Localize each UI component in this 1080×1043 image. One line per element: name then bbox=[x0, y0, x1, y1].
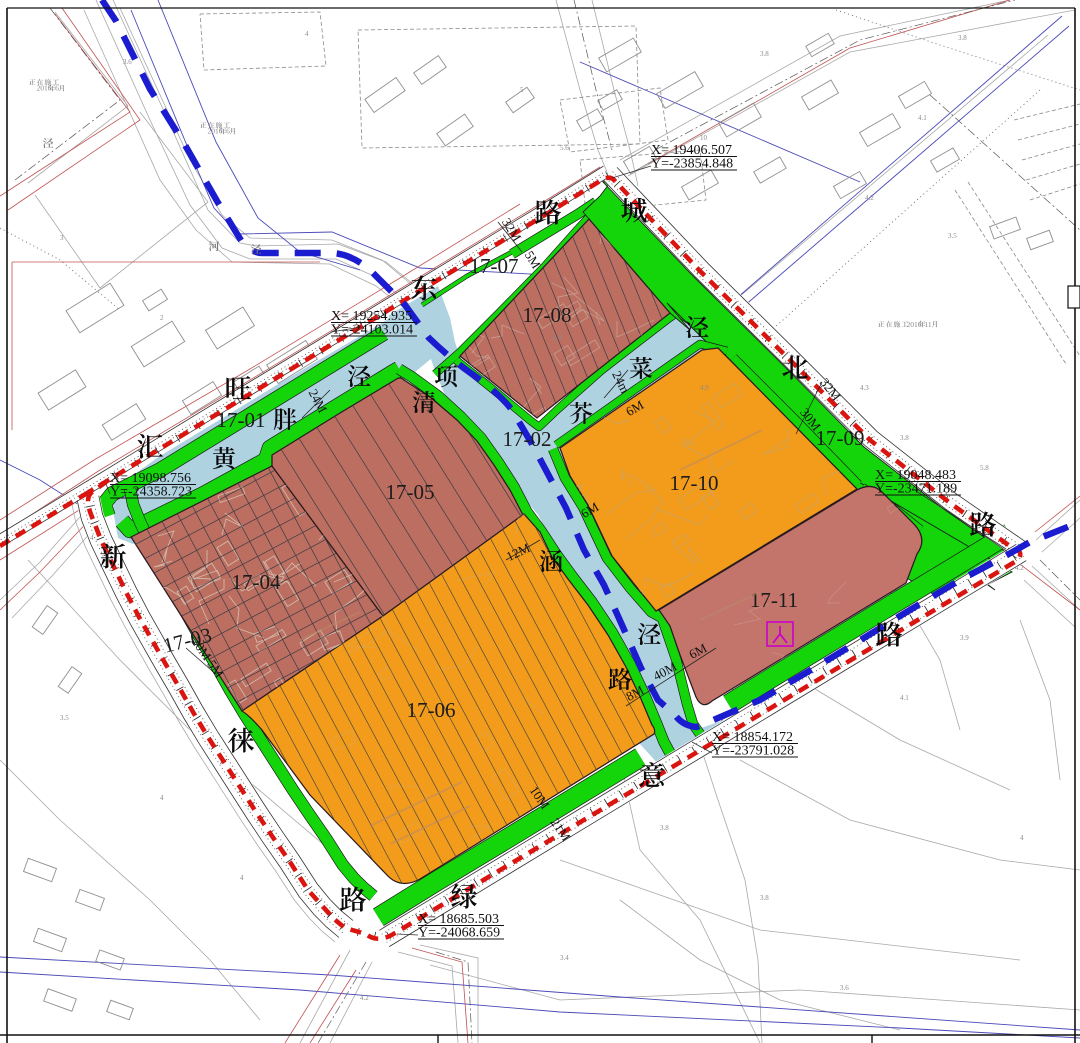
svg-text:17-08: 17-08 bbox=[523, 303, 572, 327]
svg-text:6: 6 bbox=[226, 127, 230, 136]
svg-text:5.8: 5.8 bbox=[980, 464, 989, 472]
svg-text:10: 10 bbox=[700, 134, 708, 142]
svg-text:4.1: 4.1 bbox=[900, 694, 909, 702]
svg-text:17-07: 17-07 bbox=[470, 254, 519, 278]
svg-text:3.5: 3.5 bbox=[60, 714, 69, 722]
svg-text:17-01: 17-01 bbox=[217, 408, 266, 432]
svg-text:3.5: 3.5 bbox=[948, 232, 957, 240]
svg-text:17-10: 17-10 bbox=[670, 471, 719, 495]
svg-text:4.1: 4.1 bbox=[918, 114, 927, 122]
svg-text:3.8: 3.8 bbox=[660, 824, 669, 832]
svg-text:4.2: 4.2 bbox=[1015, 564, 1024, 572]
svg-text:3.6: 3.6 bbox=[123, 58, 132, 66]
svg-text:17-06: 17-06 bbox=[407, 698, 456, 722]
svg-text:5: 5 bbox=[520, 86, 524, 94]
svg-text:4: 4 bbox=[160, 794, 164, 802]
svg-text:17-02: 17-02 bbox=[503, 427, 552, 451]
svg-text:2016: 2016 bbox=[208, 127, 223, 136]
svg-text:3.8: 3.8 bbox=[760, 894, 769, 902]
svg-text:4: 4 bbox=[305, 30, 309, 38]
svg-text:Y=-23471.189: Y=-23471.189 bbox=[875, 482, 957, 497]
svg-text:17-11: 17-11 bbox=[750, 588, 798, 612]
svg-text:Y=-24068.659: Y=-24068.659 bbox=[418, 926, 500, 941]
svg-text:Y=-24103.014: Y=-24103.014 bbox=[331, 323, 413, 338]
svg-text:2: 2 bbox=[160, 314, 164, 322]
svg-text:5.6: 5.6 bbox=[560, 144, 569, 152]
svg-text:Y=-23854.848: Y=-23854.848 bbox=[651, 157, 733, 172]
svg-text:2016: 2016 bbox=[907, 320, 922, 329]
svg-text:17-05: 17-05 bbox=[386, 480, 435, 504]
svg-text:4.9: 4.9 bbox=[553, 334, 562, 342]
svg-text:3.6: 3.6 bbox=[840, 984, 849, 992]
svg-text:3.8: 3.8 bbox=[760, 50, 769, 58]
svg-text:3.4: 3.4 bbox=[560, 954, 569, 962]
svg-text:4: 4 bbox=[240, 874, 244, 882]
svg-text:4.2: 4.2 bbox=[360, 994, 369, 1002]
svg-text:Y=-23791.028: Y=-23791.028 bbox=[712, 744, 794, 759]
svg-text:4.2: 4.2 bbox=[865, 194, 874, 202]
svg-text:4: 4 bbox=[1020, 834, 1024, 842]
svg-text:17-09: 17-09 bbox=[816, 426, 865, 450]
svg-text:3: 3 bbox=[60, 234, 64, 242]
svg-text:4.3: 4.3 bbox=[860, 384, 869, 392]
svg-text:3.8: 3.8 bbox=[900, 434, 909, 442]
svg-text:4: 4 bbox=[90, 534, 94, 542]
svg-text:4.9: 4.9 bbox=[700, 384, 709, 392]
svg-text:11: 11 bbox=[924, 320, 931, 329]
svg-text:3.8: 3.8 bbox=[958, 34, 967, 42]
svg-text:2016: 2016 bbox=[37, 84, 52, 93]
svg-text:3.9: 3.9 bbox=[960, 634, 969, 642]
svg-text:Y=-24358.723: Y=-24358.723 bbox=[110, 485, 192, 500]
svg-text:17-04: 17-04 bbox=[232, 570, 281, 594]
svg-text:6: 6 bbox=[55, 84, 59, 93]
